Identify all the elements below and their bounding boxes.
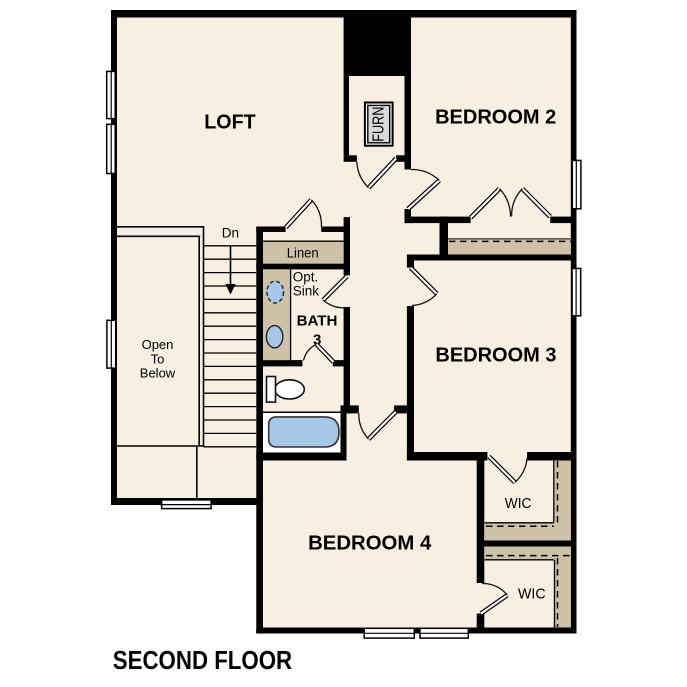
svg-text:BEDROOM 2: BEDROOM 2 — [435, 106, 556, 128]
svg-text:WIC: WIC — [518, 586, 546, 602]
svg-text:BEDROOM 4: BEDROOM 4 — [308, 532, 432, 554]
svg-text:BATH: BATH — [297, 313, 338, 330]
svg-text:SECOND FLOOR: SECOND FLOOR — [113, 645, 292, 675]
svg-text:Opt.: Opt. — [293, 270, 319, 285]
svg-text:WIC: WIC — [505, 496, 532, 512]
svg-text:Dn: Dn — [222, 226, 239, 241]
svg-text:To: To — [151, 351, 165, 366]
svg-text:Linen: Linen — [287, 246, 319, 261]
svg-text:Sink: Sink — [293, 284, 320, 299]
svg-text:Open: Open — [142, 337, 174, 352]
svg-text:FURN: FURN — [371, 107, 388, 142]
svg-text:BEDROOM 3: BEDROOM 3 — [435, 344, 556, 366]
svg-text:Below: Below — [140, 366, 176, 381]
svg-text:LOFT: LOFT — [204, 112, 255, 134]
